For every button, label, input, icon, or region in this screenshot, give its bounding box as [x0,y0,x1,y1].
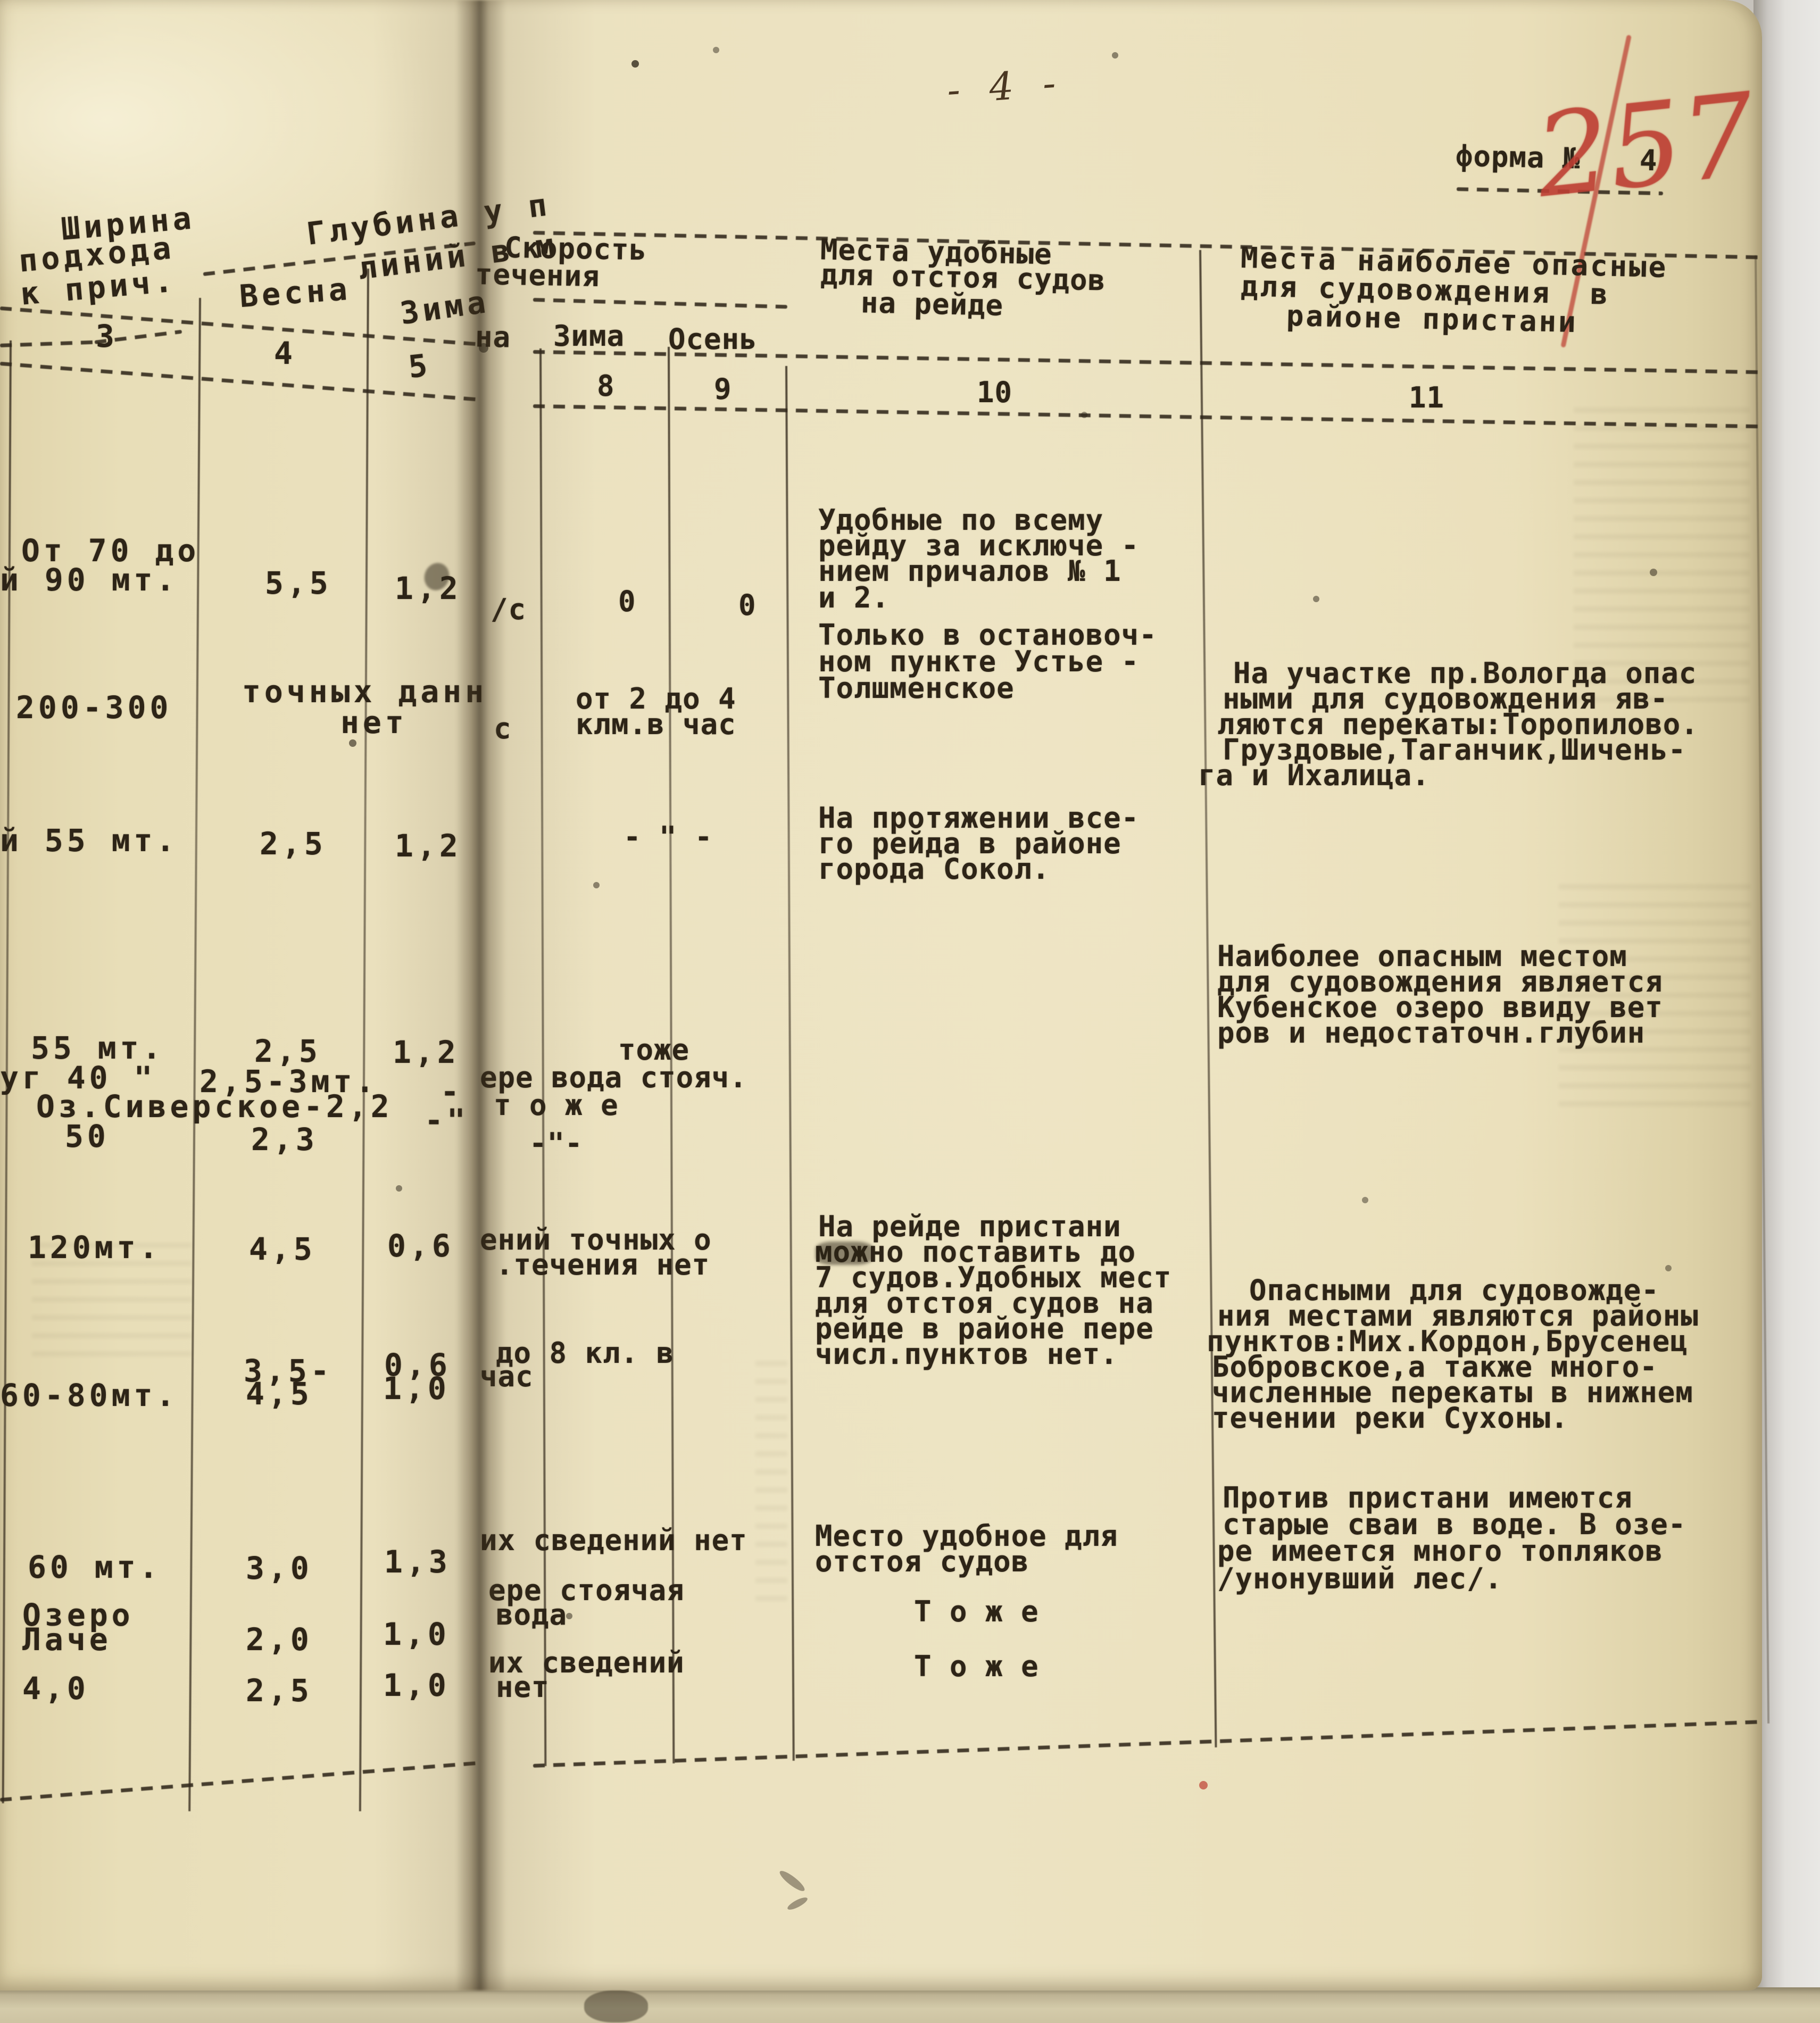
row4-depth-spring-d: 2,3 [251,1123,318,1156]
row1-speed-winter: 0 [618,587,636,617]
binding-fold-shadow [455,0,506,1991]
header-col5-number: 5 [407,349,433,384]
header-col8-subheader: Зима [553,321,625,352]
row6-depth-spring-line2: 4,5 [246,1378,313,1410]
header-col9-subheader: Осень [668,324,758,355]
row1-approach-width-line2: й 90 мт. [0,564,178,596]
bleedthrough-smudge [755,1351,787,1601]
header-col4-number: 4 [274,337,296,370]
row4-depth-spring-a: 2,5 [254,1035,321,1068]
row8-depth-winter: 1,0 [383,1618,450,1651]
header-col4-subheader: Весна [238,273,352,313]
row9-approach-width: 4,0 [22,1672,89,1705]
row5-depth-spring: 4,5 [249,1233,316,1266]
row7-speed-nodata: их сведений нет [480,1526,747,1556]
paper-specks [0,0,4,4]
row6-approach-width: 60-80мт. [0,1379,178,1412]
row2-speed-line2: клм.в час [576,710,736,740]
row3-approach-width: й 55 мт. [0,825,178,857]
page-edges-bottom [0,1987,1820,2023]
row7-depth-winter: 1,3 [384,1546,451,1578]
row7-approach-width: 60 мт. [28,1551,162,1584]
archival-document-scan: - 4 - форма № 4 257 Ширина подхода к при… [0,0,1820,2023]
row9-depth-winter: 1,0 [383,1669,450,1702]
row9-depth-spring: 2,5 [246,1675,313,1707]
header-col3-number: 3 [96,320,118,353]
row5-approach-width: 120мт. [28,1231,162,1264]
row8-lake-line2: Лаче [22,1624,112,1656]
row4-danger-line4: ров и недостаточн.глубин [1217,1018,1645,1048]
row3-anchorage-line3: города Сокол. [818,854,1050,885]
row7-anchorage-line2: отстоя судов [815,1547,1029,1577]
red-pencil-number: 257 [1530,68,1761,223]
row2-anchorage-line3: Толшменское [818,673,1015,704]
ink-smudge [816,1242,873,1265]
row5-danger-line6: течении реки Сухоны. [1212,1403,1568,1434]
row7-depth-spring: 3,0 [246,1552,313,1585]
header-col11-number: 11 [1409,383,1444,413]
scan-background-right [1753,0,1820,2023]
row3-depth-winter: 1,2 [395,830,462,862]
page-number: - 4 - [945,60,1066,112]
row3-speed-ditto: - " - [624,822,713,853]
row4-depth-winter-a: 1,2 [393,1036,460,1069]
row4-ditto-mark-2: -"- [529,1129,583,1159]
row8-anchorage-ditto: Т о ж е [914,1597,1039,1627]
row3-depth-spring: 2,5 [260,828,327,860]
row7-danger-line4: /унонувший лес/. [1217,1564,1502,1594]
row2-approach-width: 200-300 [16,692,172,724]
row4-speed-ditto-b: т о ж е [494,1090,619,1121]
header-col10-line3: на рейде [860,288,1003,321]
header-col10-number: 10 [977,378,1012,408]
header-col8-number: 8 [597,371,615,402]
row2-depth-nodata-line1: точных данн [242,676,487,708]
row6-depth-winter-line2: 1,0 [383,1372,450,1405]
row2-danger-line5: га и Ихалица. [1198,761,1430,791]
row5-anchorage-line6: числ.пунктов нет. [815,1339,1118,1370]
header-col9-number: 9 [714,374,732,405]
header-col11-line3: районе пристани [1286,301,1578,338]
row5-depth-winter: 0,6 [387,1230,454,1262]
row4-width-d: 50 [65,1120,110,1153]
row9-anchorage-ditto: Т о ж е [914,1652,1039,1682]
row5-speed-line2: .течения нет [496,1250,710,1280]
row1-anchorage-line4: и 2. [818,583,890,613]
row2-depth-nodata-line2: нет [340,706,408,739]
row8-depth-spring: 2,0 [246,1624,313,1656]
row1-depth-spring: 5,5 [265,567,332,600]
row8-speed-line2: вода [496,1600,567,1630]
bottom-edge-blotch [584,1991,648,2022]
row1-speed-autumn: 0 [738,590,757,621]
